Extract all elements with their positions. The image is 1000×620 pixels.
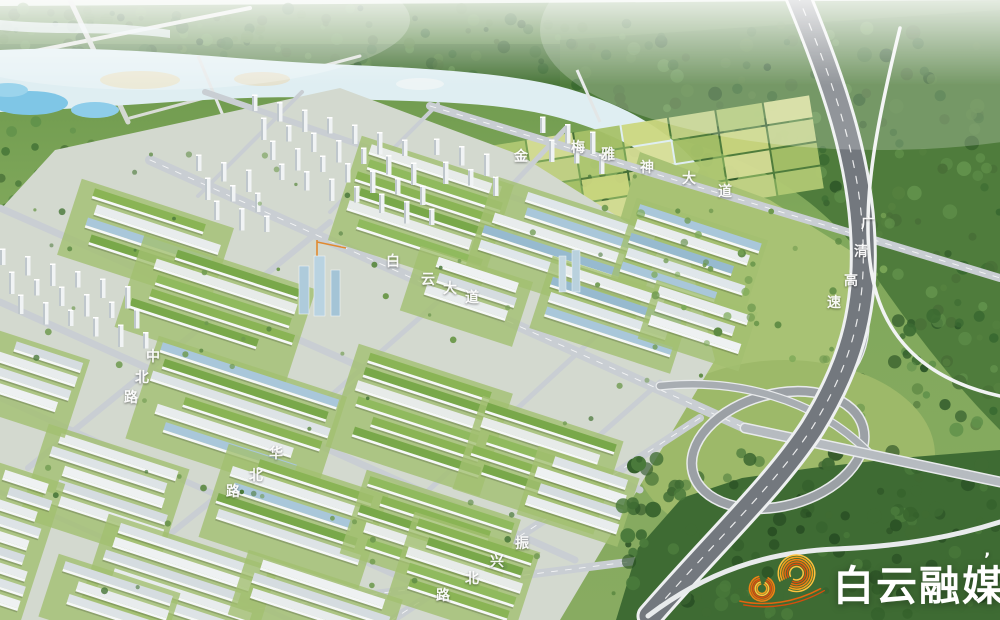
watermark-text: 白云融媒 <box>833 552 1000 612</box>
aerial-city-render: 白云大道梅雅神大道金中北路华北路振兴北路广清高速 白云融媒 ’ <box>0 0 1000 620</box>
city-render-scene <box>0 0 1000 620</box>
watermark-tick: ’ <box>984 550 990 570</box>
cloud-swirl-icon <box>736 547 832 613</box>
